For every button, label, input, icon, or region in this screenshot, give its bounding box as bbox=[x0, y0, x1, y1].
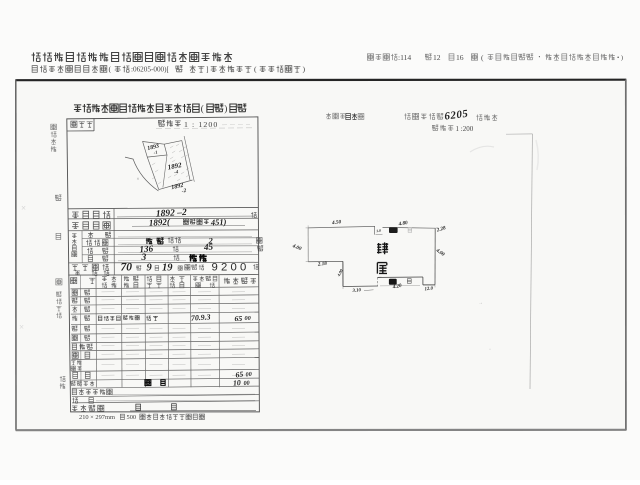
svg-text:2.18: 2.18 bbox=[317, 261, 328, 268]
svg-text:10: 10 bbox=[233, 378, 242, 388]
svg-text:451): 451) bbox=[210, 217, 227, 228]
svg-text:×: × bbox=[137, 178, 140, 183]
svg-text:): ) bbox=[303, 64, 306, 73]
svg-text:(: ( bbox=[201, 103, 204, 113]
svg-text:16: 16 bbox=[456, 53, 464, 62]
svg-text:9: 9 bbox=[147, 262, 153, 273]
svg-text:12: 12 bbox=[433, 53, 441, 62]
svg-text:00: 00 bbox=[245, 315, 251, 322]
svg-text:(: ( bbox=[254, 64, 257, 73]
svg-text::114: :114 bbox=[398, 53, 411, 62]
svg-text:4.50: 4.50 bbox=[331, 219, 342, 226]
svg-text:12.0: 12.0 bbox=[424, 286, 434, 292]
svg-text:(: ( bbox=[109, 64, 112, 73]
svg-text:1 : 1200: 1 : 1200 bbox=[184, 120, 218, 129]
svg-text:×: × bbox=[19, 322, 24, 332]
svg-text:500: 500 bbox=[127, 414, 137, 421]
svg-text:65: 65 bbox=[235, 314, 243, 323]
svg-text:): ) bbox=[224, 103, 227, 113]
svg-text:70: 70 bbox=[121, 262, 133, 274]
svg-text:3.10: 3.10 bbox=[351, 288, 361, 294]
svg-text:1 :200: 1 :200 bbox=[456, 125, 474, 133]
svg-text:1892(: 1892( bbox=[149, 217, 171, 228]
svg-text:×: × bbox=[21, 203, 26, 213]
svg-text:00: 00 bbox=[245, 371, 252, 379]
svg-text:70.9.3: 70.9.3 bbox=[191, 312, 211, 322]
svg-text::06205-000)[: :06205-000)[ bbox=[131, 65, 170, 73]
svg-text:00: 00 bbox=[243, 380, 250, 388]
svg-text:]: ] bbox=[206, 64, 209, 73]
svg-text:→: → bbox=[478, 301, 483, 306]
svg-text:·: · bbox=[489, 347, 491, 353]
svg-text:1.0: 1.0 bbox=[376, 229, 381, 234]
svg-text:45: 45 bbox=[203, 241, 214, 252]
svg-text:210 × 297mm: 210 × 297mm bbox=[79, 414, 115, 421]
svg-text:9200: 9200 bbox=[212, 262, 250, 274]
svg-text:• ): • ) bbox=[617, 55, 623, 62]
svg-text:•: • bbox=[539, 56, 541, 61]
svg-text:19: 19 bbox=[162, 262, 173, 273]
